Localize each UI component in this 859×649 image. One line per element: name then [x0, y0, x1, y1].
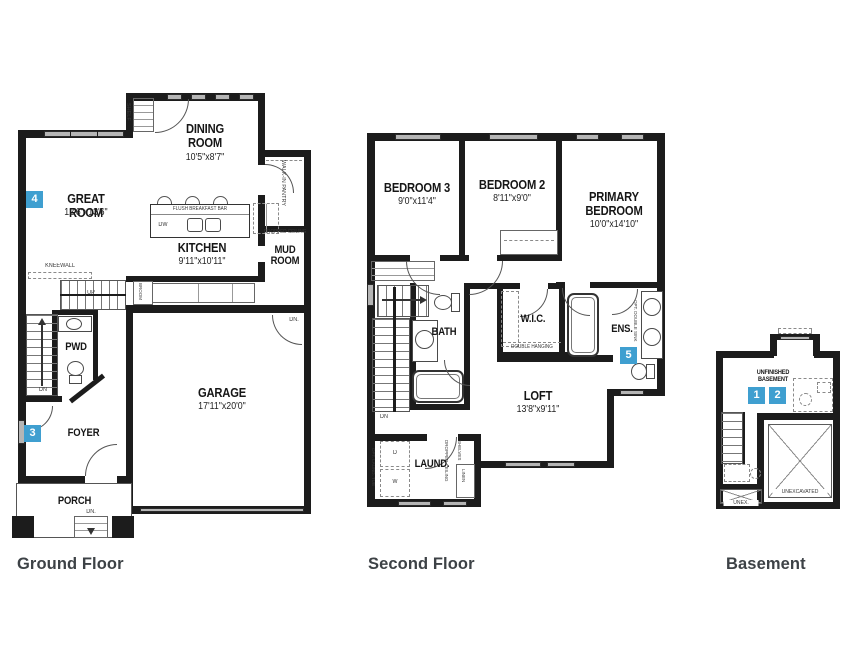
bath-toilet-bowl: [434, 295, 452, 310]
stair-rail: [393, 287, 396, 412]
wall-segment: [459, 133, 465, 261]
room-label-dining: DINING ROOM: [173, 122, 237, 149]
window: [215, 94, 230, 100]
dn-note: DN: [37, 387, 50, 393]
room-label-bedroom3: BEDROOM 3: [383, 181, 452, 195]
floor-title-second: Second Floor: [368, 555, 475, 574]
stair-arrowhead: [420, 296, 427, 304]
wall-segment: [18, 476, 85, 483]
badge-1: 1: [748, 387, 765, 404]
room-label-kitchen: KITCHEN: [169, 241, 234, 255]
dishwasher-note: DW: [156, 222, 171, 228]
wall-segment: [410, 404, 470, 410]
wall-segment: [497, 255, 562, 261]
wall-segment: [497, 355, 613, 362]
door-arc: [265, 164, 294, 193]
wall-segment: [716, 351, 774, 358]
window: [489, 134, 538, 140]
window: [239, 94, 254, 100]
counter-divider: [198, 284, 199, 302]
wall-segment: [304, 150, 311, 514]
wall-segment: [258, 150, 265, 165]
badge-5: 5: [620, 347, 637, 364]
stair-arrowhead: [38, 318, 46, 325]
wic-hanging-line: [503, 342, 561, 343]
bath-roughin: [724, 464, 750, 482]
roughin-drain: [750, 468, 761, 479]
stool-icon: [157, 196, 172, 204]
wall-segment: [590, 282, 665, 288]
island-line: [151, 214, 249, 215]
room-label-porch: PORCH: [51, 496, 98, 507]
room-dims-bedroom3: 9'0"x11'4": [382, 196, 452, 207]
room-dims-bedroom2: 8'11"x9'0": [477, 193, 547, 204]
stool-icon: [213, 196, 228, 204]
room-label-garage: GARAGE: [188, 386, 257, 400]
room-dims-dining: 10'5"x8'7": [172, 152, 237, 163]
window: [398, 501, 431, 506]
room-label-unex: UNEX.: [724, 500, 759, 506]
laundry-tub-note: OPT. LAUND. TUB: [371, 448, 376, 494]
porch-post: [112, 516, 134, 538]
room-label-laundry: LAUND.: [411, 459, 452, 470]
badge-3: 3: [24, 425, 41, 442]
wall-segment: [26, 396, 62, 402]
wall-segment: [52, 310, 98, 315]
wall-segment: [440, 255, 465, 261]
ens-toilet-tank: [646, 364, 655, 379]
window: [367, 284, 374, 306]
room-dims-garage: 17'11"x20'0": [187, 401, 257, 412]
window: [395, 134, 441, 140]
bath-toilet-tank: [451, 293, 460, 312]
wall-segment: [367, 434, 427, 441]
floor-title-ground: Ground Floor: [17, 555, 124, 574]
counter-divider: [232, 284, 233, 302]
room-label-unexcavated: UNEXCAVATED: [772, 489, 827, 495]
dn-note: DN: [377, 414, 392, 420]
room-dims-kitchen: 9'11"x10'11": [169, 256, 236, 267]
kneewall-note: KNEEWALL: [32, 263, 87, 269]
hot-water-tank: [799, 393, 812, 406]
window-well: [778, 328, 812, 334]
room-label-pwd: PWD: [61, 342, 92, 353]
ens-sink: [643, 298, 661, 316]
wall-segment: [607, 389, 614, 468]
bed2-closet-shelf: [504, 240, 554, 241]
badge-2: 2: [769, 387, 786, 404]
closet-shelf-note: SHELF: [125, 103, 131, 121]
sink-basin: [205, 218, 221, 232]
room-label-ens: ENS.: [603, 324, 641, 335]
stair-rail: [743, 412, 745, 464]
floor-title-basement: Basement: [726, 555, 806, 574]
wall-segment: [126, 305, 311, 313]
window: [576, 134, 599, 140]
dropped-ceiling-note: DROPPED CEILING: [264, 229, 306, 235]
window: [44, 131, 124, 137]
closet: [133, 98, 154, 132]
window: [621, 134, 644, 140]
garage-step-note: DN.: [285, 317, 303, 323]
room-dims-primary: 10'0"x14'10": [579, 219, 649, 230]
room-dims-great: 12'6"x13'6": [51, 207, 121, 218]
dryer-note: D: [390, 450, 399, 456]
window: [547, 462, 575, 467]
wall-segment: [464, 283, 470, 410]
wic-note: DOUBLE HANGING: [505, 344, 558, 350]
stool-icon: [185, 196, 200, 204]
room-label-bath: BATH: [427, 327, 461, 338]
stairs-down: [372, 318, 410, 412]
up-note: UP: [85, 290, 98, 296]
wall-segment: [117, 476, 133, 483]
badge-4: 4: [26, 191, 43, 208]
wall-segment: [757, 413, 833, 420]
room-label-primary: PRIMARY BEDROOM: [580, 190, 649, 217]
pwd-toilet-tank: [69, 375, 82, 384]
linen-note: LINEN: [461, 469, 466, 495]
window: [505, 462, 541, 467]
pwd-sink: [66, 318, 82, 330]
room-label-bedroom2: BEDROOM 2: [478, 178, 547, 192]
floor-plan-image: SHELF UP KNEEWALL DN FLUSH BREAKFAST BAR…: [0, 0, 859, 649]
window: [780, 336, 810, 340]
window-mullion: [97, 131, 98, 137]
unexcavated-area: [768, 424, 832, 498]
wall-segment: [474, 434, 481, 507]
room-label-mud: MUD ROOM: [267, 245, 303, 268]
washer-note: W: [390, 479, 399, 485]
stair-arrow: [382, 299, 420, 301]
wall-segment: [258, 262, 265, 282]
porch-step-note: DN.: [77, 509, 105, 515]
kneewall-line: [28, 272, 92, 279]
window-mullion: [70, 131, 71, 137]
mech-box: [817, 382, 831, 393]
wall-segment: [93, 310, 98, 380]
ens-toilet-bowl: [631, 363, 647, 380]
ens-sink: [643, 328, 661, 346]
wall-segment: [833, 351, 840, 509]
front-door-arc: [85, 444, 117, 476]
room-label-unfinished: UNFINISHED BASEMENT: [748, 370, 798, 384]
room-dims-loft: 13'8"x9'11": [503, 404, 573, 415]
stair-arrow: [41, 324, 43, 386]
sink-basin: [187, 218, 203, 232]
room-label-wic: W.I.C.: [512, 314, 555, 325]
room-label-foyer: FOYER: [60, 428, 107, 439]
broom-closet: [133, 281, 153, 305]
window: [620, 390, 644, 395]
garage-door: [140, 508, 304, 512]
breakfast-bar-note: FLUSH BREAKFAST BAR: [159, 206, 242, 212]
room-label-loft: LOFT: [504, 389, 573, 403]
stairs-basement: [721, 412, 743, 464]
wall-segment: [258, 93, 265, 157]
window: [443, 501, 467, 506]
window: [191, 94, 206, 100]
porch-post: [12, 516, 34, 538]
bed2-closet: [500, 230, 558, 255]
broom-note: BROOM: [138, 283, 143, 300]
porch-step-arrow: [87, 528, 95, 535]
pwd-toilet-bowl: [67, 361, 84, 376]
